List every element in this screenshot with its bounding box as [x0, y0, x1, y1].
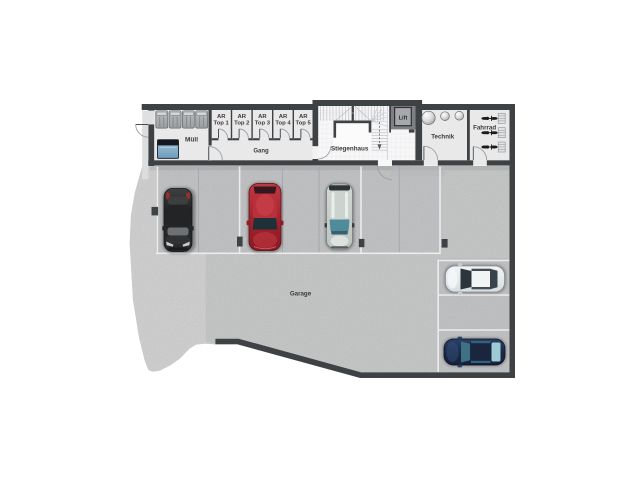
svg-text:Müll: Müll: [185, 137, 198, 144]
svg-text:Stiegenhaus: Stiegenhaus: [331, 145, 369, 152]
svg-text:AR: AR: [279, 114, 288, 120]
svg-text:AR: AR: [258, 114, 267, 120]
svg-text:Top 3: Top 3: [255, 120, 271, 126]
svg-text:Garage: Garage: [290, 291, 312, 298]
svg-text:Technik: Technik: [431, 133, 454, 140]
svg-text:Gang: Gang: [253, 149, 269, 155]
svg-text:AR: AR: [217, 114, 226, 120]
svg-text:Top 4: Top 4: [275, 120, 291, 126]
svg-text:AR: AR: [238, 114, 247, 120]
svg-text:AR: AR: [299, 114, 308, 120]
svg-text:Top 1: Top 1: [214, 120, 230, 126]
svg-text:Top 5: Top 5: [296, 120, 312, 126]
svg-text:Top 2: Top 2: [234, 120, 250, 126]
svg-text:Fahrrad: Fahrrad: [473, 124, 496, 131]
svg-text:Lift: Lift: [399, 115, 408, 121]
